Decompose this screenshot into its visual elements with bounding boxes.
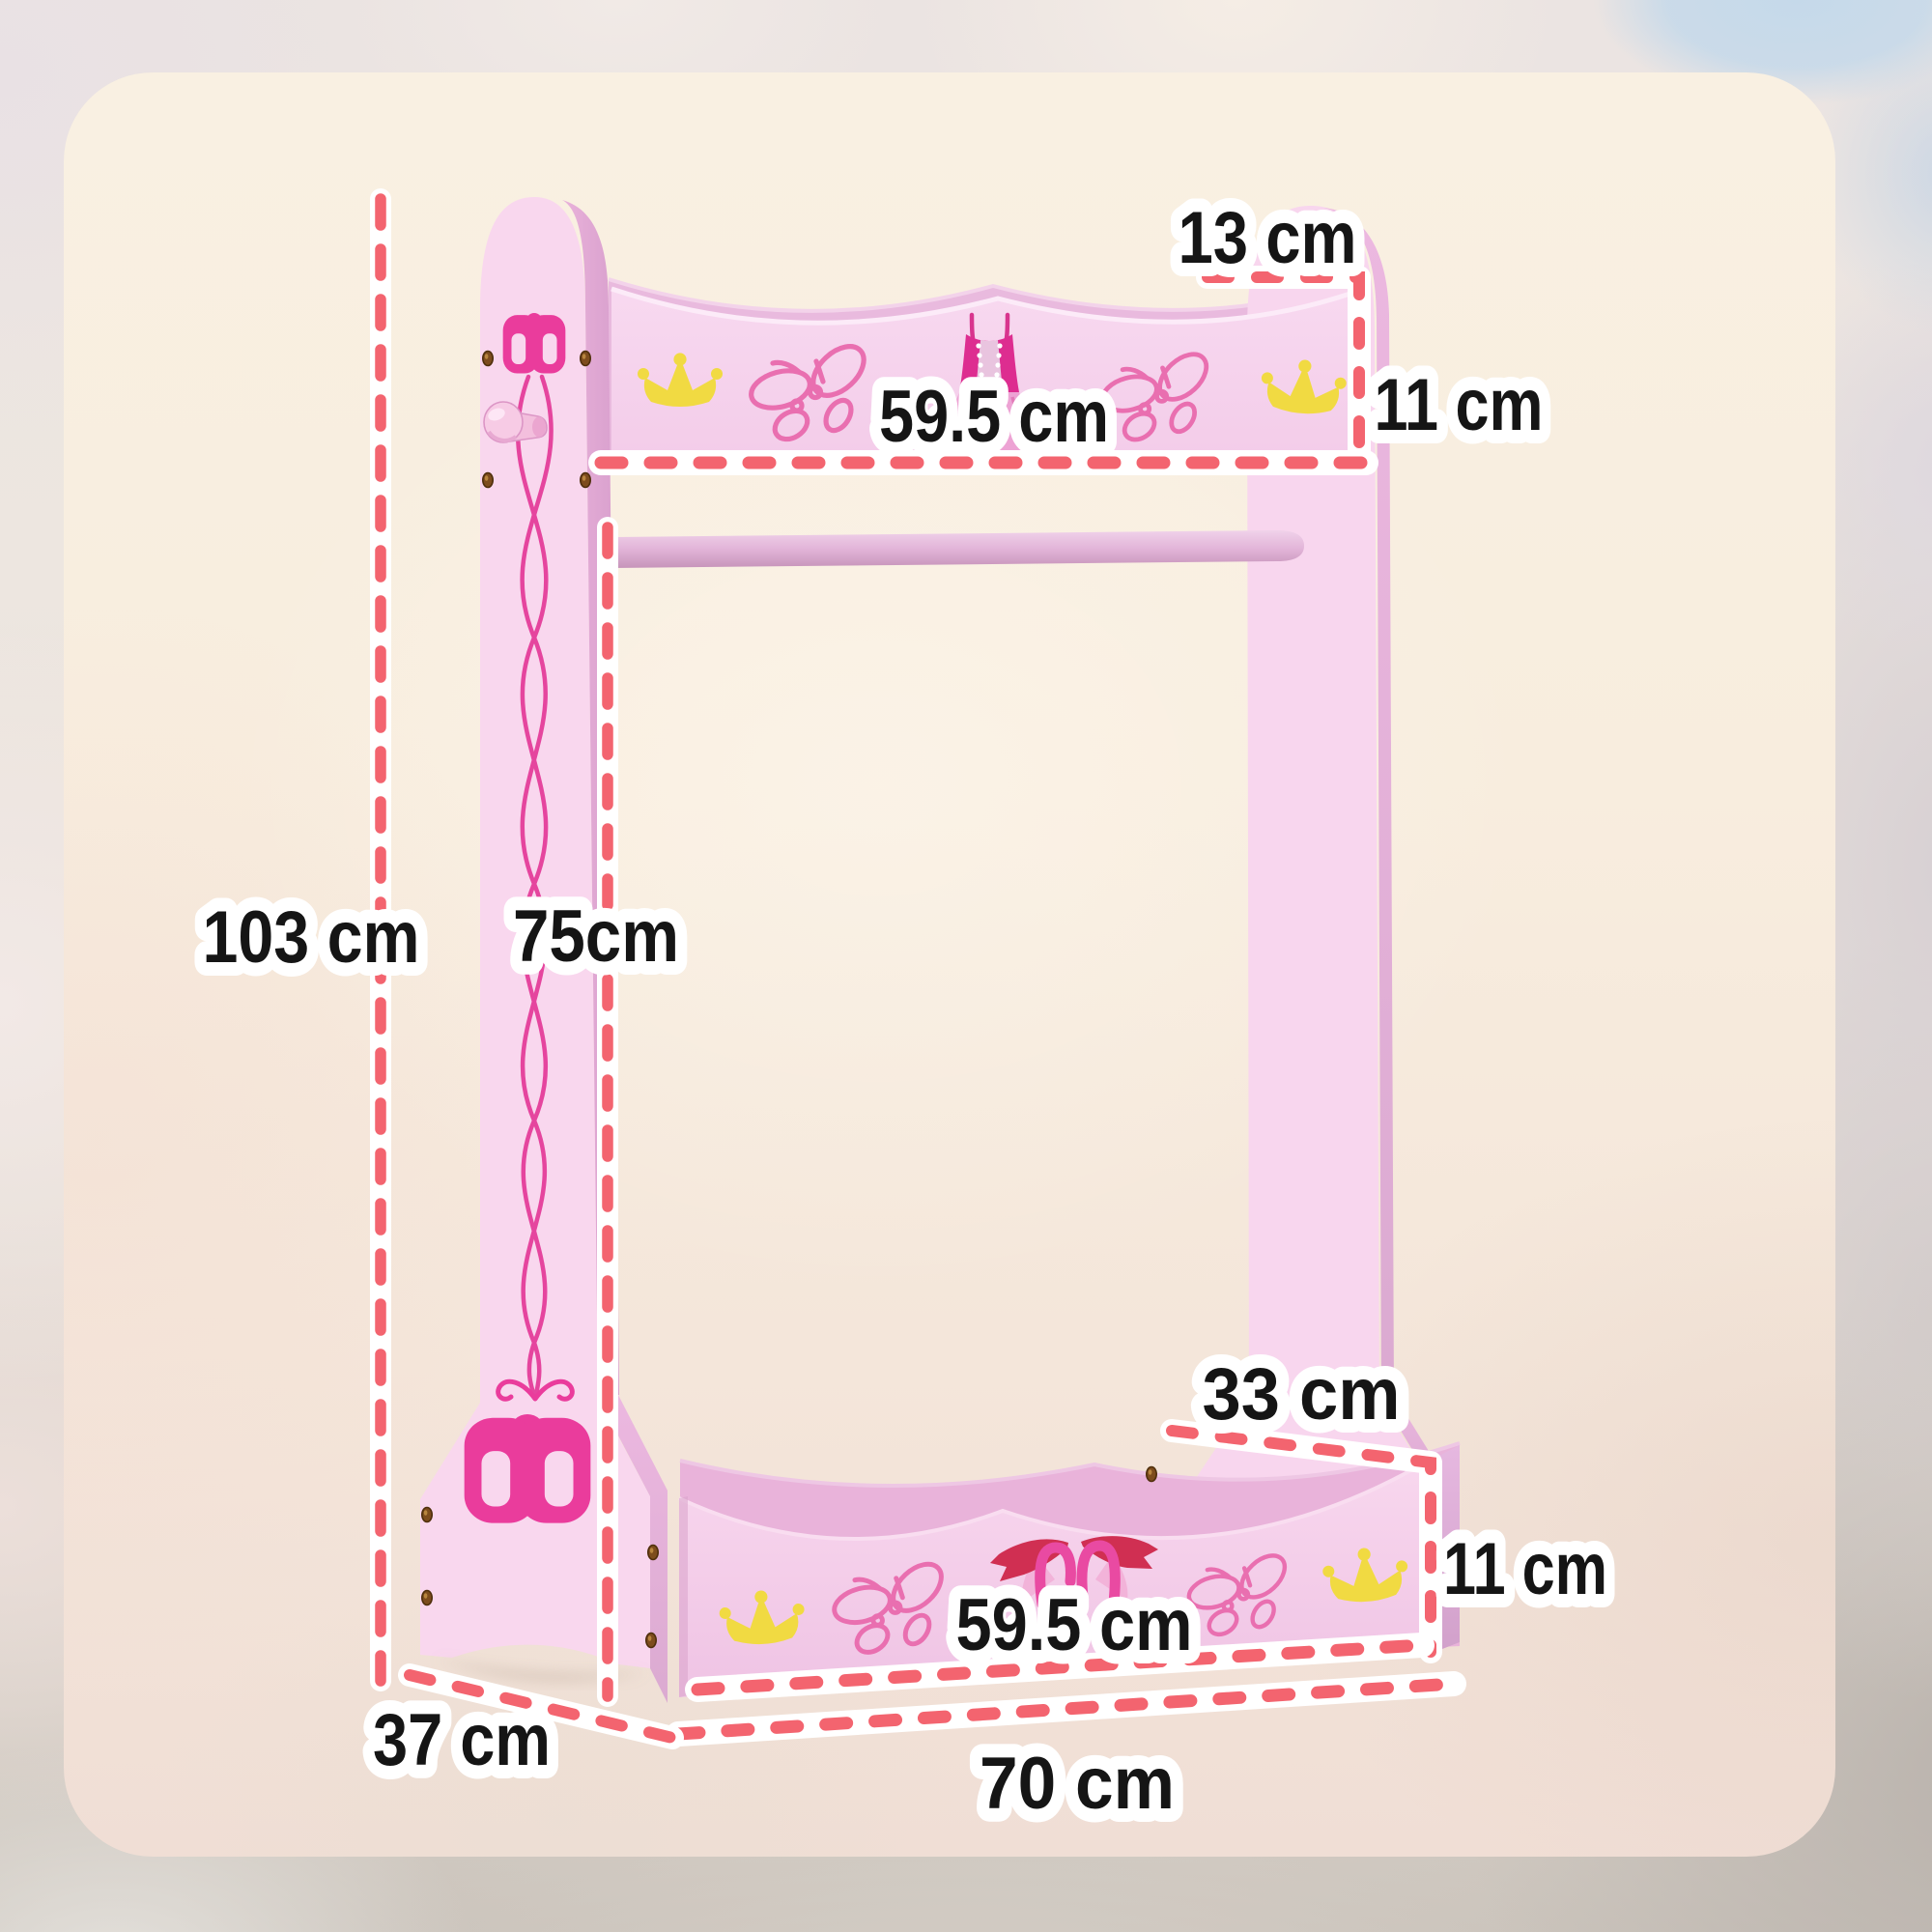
svg-text:37 cm: 37 cm (373, 1699, 551, 1781)
svg-text:75cm: 75cm (513, 895, 679, 978)
svg-text:70 cm: 70 cm (980, 1743, 1175, 1825)
svg-text:59.5 cm: 59.5 cm (956, 1584, 1193, 1666)
svg-text:59.5 cm: 59.5 cm (879, 376, 1109, 458)
svg-text:13 cm: 13 cm (1179, 197, 1357, 279)
svg-text:103 cm: 103 cm (203, 896, 420, 979)
svg-text:33 cm: 33 cm (1203, 1353, 1401, 1435)
svg-text:11 cm: 11 cm (1375, 364, 1544, 446)
svg-text:11 cm: 11 cm (1443, 1528, 1607, 1610)
